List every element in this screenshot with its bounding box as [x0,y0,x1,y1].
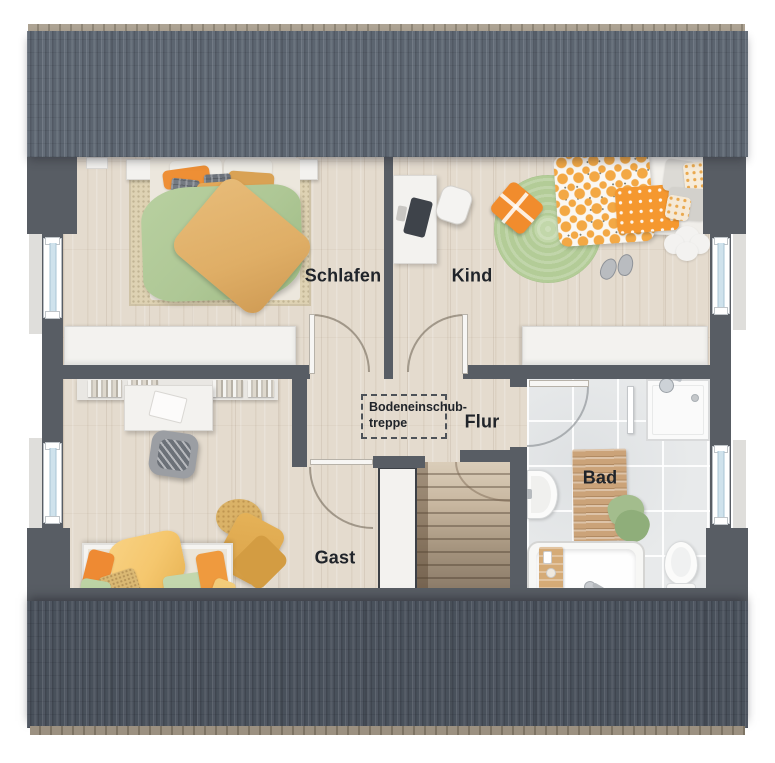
roof-north [27,31,748,157]
room-label-gast: Gast [315,548,356,569]
window-glass [718,243,725,309]
wardrobe [522,326,708,367]
pillow [664,194,692,222]
wall-kind-south [463,365,710,379]
attic-hatch-line2: treppe [369,415,445,431]
wall-schlafen-south [63,365,310,379]
shower-head [659,378,674,393]
shower-drain [691,394,699,402]
window-bad [712,446,730,524]
door-leaf-bad [529,380,589,387]
wall-east-gable-north [703,156,746,234]
wall-south [42,588,731,602]
books [88,380,122,397]
stair-closet-panel [378,467,417,602]
attic-hatch-line1: Bodeneinschub- [369,399,445,415]
books [248,380,274,397]
wall-west-gable-north [27,156,77,234]
chair-cushion [156,438,192,472]
wall-bad-west [510,447,527,602]
wall-gast-east [292,379,307,467]
toilet-seat [671,547,691,577]
door-leaf-kind [462,314,468,374]
window-glass [49,243,56,313]
door-leaf-gast [310,459,373,465]
roof-ridge-south [30,726,745,735]
room-label-kind: Kind [452,266,493,287]
wall-stairwell-north [373,456,425,468]
shower-glass-door [627,386,634,434]
door-leaf-schlafen [309,314,315,374]
roof-south [27,601,748,728]
window-ledge [733,234,746,330]
wall-bedroom-divider [384,156,393,379]
attic-hatch-annotation: Bodeneinschub- treppe [361,394,447,439]
shower-inner [652,385,704,435]
window-ledge [29,438,42,528]
room-label-flur: Flur [465,412,500,433]
bottle [546,568,556,578]
wall-bad-west-stub [510,379,527,387]
window-glass [49,448,56,518]
room-label-schlafen: Schlafen [305,266,382,287]
books [213,380,243,397]
window-schlafen [43,238,62,318]
floor-plan: Schlafen Kind Flur Gast Bad Bodeneinschu… [0,0,775,763]
window-gast [43,443,62,523]
bottle [543,551,552,564]
wardrobe [64,326,296,367]
window-ledge [29,234,42,334]
window-kind [712,238,730,314]
window-glass [718,451,725,519]
wall-shelf [86,157,108,169]
window-ledge [733,440,746,528]
room-label-bad: Bad [583,468,618,489]
